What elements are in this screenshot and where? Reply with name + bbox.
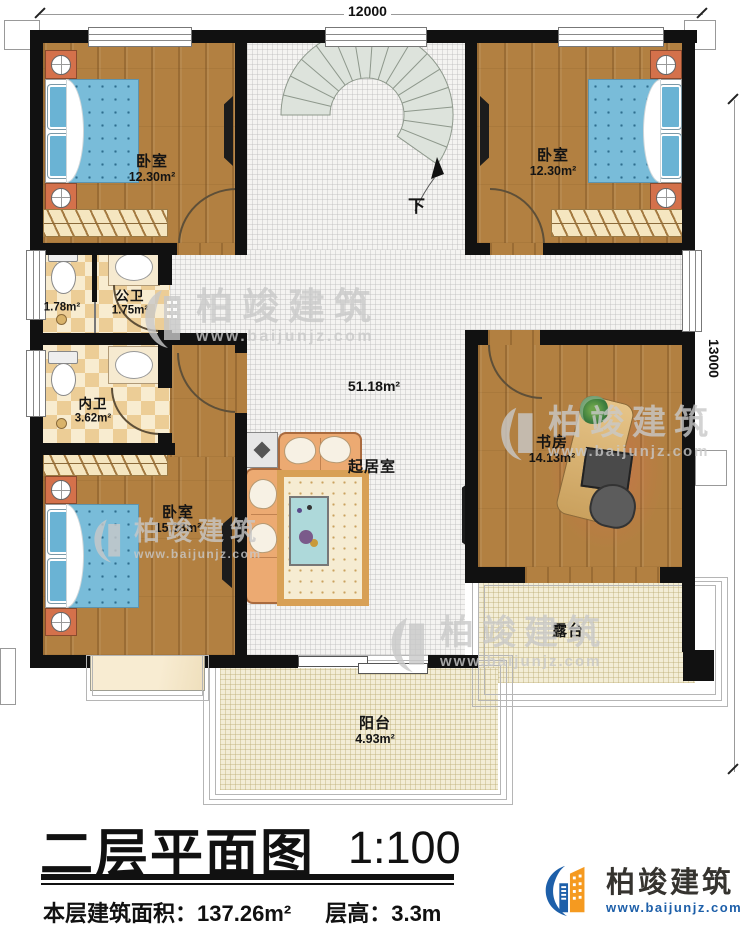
window xyxy=(558,27,664,47)
right-dimension-line xyxy=(734,100,735,772)
wall xyxy=(158,250,172,285)
lamp-icon xyxy=(51,612,71,632)
story-height-value: 3.3m xyxy=(391,901,441,926)
wall xyxy=(465,567,525,583)
wall xyxy=(200,655,298,668)
wardrobe xyxy=(43,209,168,237)
wall xyxy=(540,330,695,345)
balcony-label: 阳台 4.93m² xyxy=(355,715,395,747)
title-underline xyxy=(41,874,454,880)
pillow xyxy=(660,85,681,129)
terrace-label: 露台 xyxy=(552,622,584,639)
spiral-staircase xyxy=(247,43,465,253)
nightstand xyxy=(45,50,77,79)
nightstand xyxy=(650,50,682,79)
study-label: 书房 14.13m² xyxy=(529,434,576,466)
table-lamp-icon xyxy=(254,442,271,459)
terrace-door-threshold xyxy=(525,567,660,583)
side-table xyxy=(246,432,278,468)
wall xyxy=(465,43,477,255)
door-threshold xyxy=(235,353,247,413)
toilet-bowl xyxy=(51,363,76,396)
bedroom-top-right-label: 卧室 12.30m² xyxy=(530,147,577,179)
exterior-ledge xyxy=(0,648,16,705)
plan-scale: 1:100 xyxy=(348,822,461,874)
story-height-label: 层高： xyxy=(325,901,391,926)
stair-down-label: 下 xyxy=(408,197,426,217)
living-room-label: 起居室 xyxy=(348,458,396,475)
wall xyxy=(30,243,177,255)
wall xyxy=(190,30,325,43)
lamp-icon xyxy=(51,55,71,75)
sliding-door-panel xyxy=(358,663,428,674)
pillow xyxy=(660,134,681,178)
sink xyxy=(115,253,153,281)
plant xyxy=(580,396,608,424)
dimension-tick xyxy=(727,93,738,104)
corridor-floor xyxy=(465,250,682,330)
wall xyxy=(543,243,695,255)
dimension-tick xyxy=(696,7,707,18)
bedroom-top-left-label: 卧室 12.30m² xyxy=(129,153,176,185)
wall xyxy=(425,30,558,43)
lamp-icon xyxy=(656,188,676,208)
plan-info-line: 本层建筑面积：137.26m²层高：3.3m xyxy=(43,896,441,928)
floor-area-value: 137.26m² xyxy=(197,901,291,926)
window xyxy=(325,27,427,47)
floor-drain xyxy=(56,418,67,429)
wall xyxy=(682,30,695,250)
tv xyxy=(222,516,232,588)
top-dimension-label: 12000 xyxy=(344,3,391,19)
ensuite-bathroom-label: 内卫 3.62m² xyxy=(75,397,111,426)
wall xyxy=(660,567,695,583)
bathroom-partition-thin xyxy=(94,302,96,333)
lamp-icon xyxy=(51,480,71,500)
lamp-icon xyxy=(656,55,676,75)
tv xyxy=(480,96,489,166)
wall xyxy=(235,413,247,655)
nightstand xyxy=(45,476,77,504)
company-name: 柏竣建筑 xyxy=(606,869,742,898)
window xyxy=(26,350,46,417)
ac-niche xyxy=(695,450,727,486)
dimension-tick xyxy=(727,763,738,774)
nightstand xyxy=(45,608,77,636)
floor-plan-page: { "dimensions": { "width_mm": "12000", "… xyxy=(0,0,750,930)
right-dimension-label: 13000 xyxy=(706,335,722,382)
tv xyxy=(224,96,233,166)
title-underline-thin xyxy=(41,883,454,885)
wall xyxy=(682,330,695,652)
nightstand xyxy=(45,183,77,212)
door-threshold xyxy=(490,243,543,255)
public-bathroom-label: 公卫 1.75m² xyxy=(112,289,148,318)
wall xyxy=(235,333,247,353)
wall xyxy=(30,443,175,455)
company-logo-icon xyxy=(540,862,598,920)
floor-drain xyxy=(56,314,67,325)
wall xyxy=(235,43,247,255)
living-room-area-label: 51.18m² xyxy=(348,378,400,394)
lamp-icon xyxy=(51,188,71,208)
window xyxy=(682,250,702,332)
door-threshold xyxy=(177,243,235,255)
bedroom-bottom-left-label: 卧室 15.38m² xyxy=(155,504,202,536)
wall xyxy=(30,30,43,250)
wardrobe xyxy=(551,209,684,237)
wall xyxy=(465,345,478,567)
bay-window-frame xyxy=(92,655,203,696)
toilet-compartment-label: 1.78m² xyxy=(44,301,80,314)
toilet-bowl xyxy=(51,261,76,294)
floor-area-label: 本层建筑面积： xyxy=(43,901,197,926)
wall xyxy=(465,330,488,345)
sink xyxy=(115,351,153,379)
dimension-tick xyxy=(34,7,45,18)
pillar xyxy=(683,650,714,681)
wall xyxy=(477,243,490,255)
bathroom-partition xyxy=(92,250,97,302)
wall xyxy=(30,333,247,345)
company-website: www.baijunjz.com xyxy=(606,901,742,914)
door-threshold xyxy=(488,330,540,345)
coffee-table xyxy=(289,496,329,566)
window xyxy=(88,27,192,47)
nightstand xyxy=(650,183,682,212)
wall xyxy=(428,655,478,668)
company-logo: 柏竣建筑 www.baijunjz.com xyxy=(540,862,742,920)
